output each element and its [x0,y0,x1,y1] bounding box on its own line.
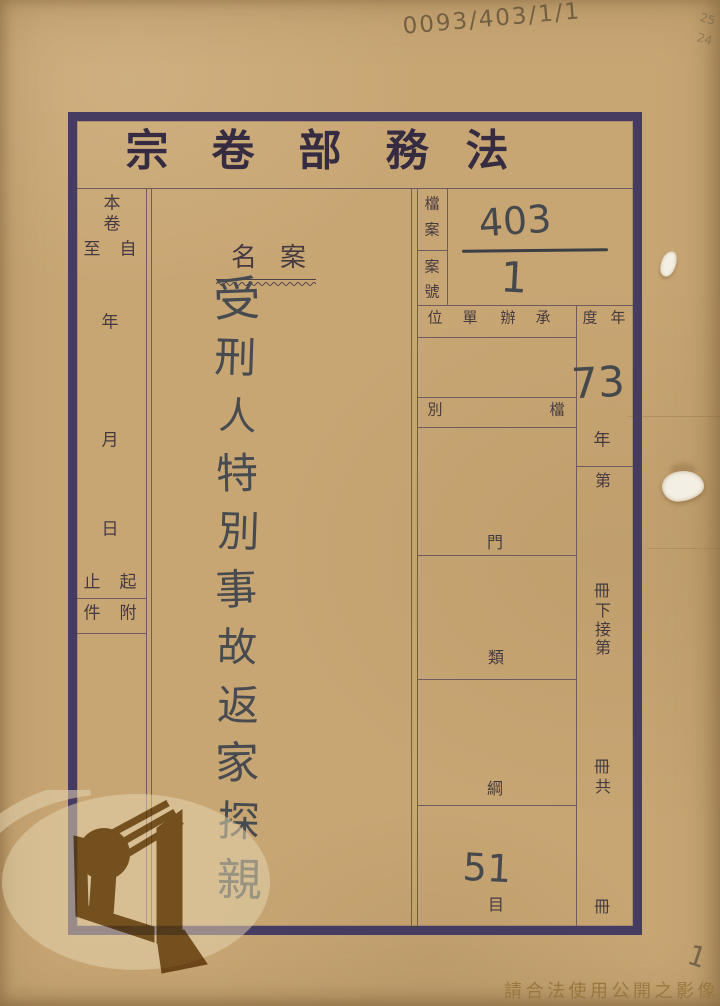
label-case-name: 名 [231,245,257,271]
label-attach-item: 件 [84,605,101,622]
title-char: 務 [386,131,429,174]
label-year-header: 年 [610,312,625,327]
volume-col-char: 冊 [594,900,610,916]
label-start: 起 [120,574,137,591]
label-volume-bottom: 卷 [104,216,121,233]
rule-section-bottom [418,805,576,806]
label-class: 類 [488,651,504,667]
case-name-char: 特 [216,453,259,496]
title-char: 部 [299,131,342,174]
pencil-archive-code: 0093/403/1/1 [381,0,602,41]
item-value-handwritten: 51 [462,848,512,888]
rule-title-bottom [77,188,633,189]
title-char: 宗 [126,131,169,174]
volume-col-char: 冊 [594,760,610,776]
volume-col-char: 冊 [594,584,610,600]
paper-damage-spot [660,468,706,504]
paper-damage-spot [658,250,678,279]
case-name-char: 別 [217,510,260,553]
rule-attach-top [77,598,146,599]
label-to: 至 [84,241,101,258]
seal-handle [88,867,117,921]
pencil-corner-note-2: 24 [696,31,714,47]
label-year-suffix: 年 [594,432,611,449]
label-item: 目 [488,898,504,914]
rule-attach-bottom [77,633,146,634]
rule-header-bottom [418,337,576,338]
pencil-corner-note-1: 25 [699,11,717,27]
pencil-page-number: 1 [684,941,710,973]
rule-unit-bottom [418,397,576,398]
case-name-char: 返 [217,684,260,727]
rule-division-bottom [418,555,576,556]
case-name-char: 事 [214,568,257,611]
label-volume-top: 本 [104,195,121,212]
usage-notice-watermark: 請合法使用公開之影像 [504,977,719,1003]
year-value-handwritten: 73 [570,361,626,406]
rule-mid-col-b [417,188,418,926]
title-char: 法 [466,131,509,174]
label-unit: 單 [462,312,477,327]
rule-fileno-label-split [418,250,447,251]
file-no-fraction-line [462,248,608,253]
label-file-category-right: 檔 [549,404,564,419]
scanned-folder-cover: 0093/403/1/1 25 24 宗 卷 部 務 法 本 卷 至 自 年 [0,0,720,1006]
label-day: 日 [102,521,119,538]
volume-col-char: 第 [595,641,611,657]
label-case-name: 案 [280,245,306,271]
archives-logo-watermark [0,790,280,1002]
label-file-no: 檔 [424,198,439,213]
volume-col-char: 第 [595,474,611,490]
volume-col-char: 接 [595,623,611,639]
label-attach: 附 [120,605,137,622]
rule-class-bottom [418,679,576,680]
rule-year-bottom [576,466,633,467]
case-name-char: 刑 [214,336,257,379]
case-name-char: 受 [213,276,262,325]
label-file-no: 案 [424,261,439,276]
file-no-top-value: 403 [477,200,552,243]
label-month: 月 [102,432,119,449]
label-from: 自 [120,241,137,258]
case-name-char: 故 [217,628,258,669]
rule-filecat-bottom [418,427,576,428]
file-no-bottom-value: 1 [500,256,529,299]
label-unit: 承 [535,312,550,327]
rule-fileno-bottom [418,305,633,306]
label-unit: 位 [427,312,442,327]
rule-fileno-label [447,188,448,305]
label-year-header: 度 [582,312,597,327]
title-char: 卷 [212,131,255,174]
volume-col-char: 下 [595,604,611,620]
label-end: 止 [84,574,101,591]
label-section: 綱 [487,782,503,798]
case-name-char: 家 [215,742,260,787]
label-file-no: 案 [424,224,439,239]
label-file-category-left: 別 [427,404,442,419]
label-division: 門 [487,536,503,552]
label-file-no: 號 [424,286,439,301]
label-unit: 辦 [500,312,515,327]
label-year: 年 [102,314,119,331]
paper-crease [648,548,720,549]
volume-col-char: 共 [595,780,611,796]
paper-crease [628,416,720,417]
case-name-char: 人 [218,396,258,436]
rule-mid-col-a [411,188,412,926]
